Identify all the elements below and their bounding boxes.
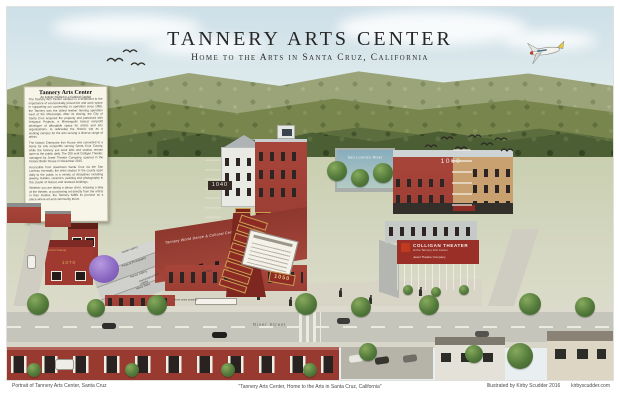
- tree: [327, 161, 347, 181]
- street-tree: [419, 295, 439, 315]
- theater-sign-wall: Colligan Theater at the Tannery Arts Cen…: [397, 240, 479, 264]
- pedestrian-figure: [289, 299, 292, 306]
- theater-name: Colligan Theater: [413, 243, 477, 248]
- info-paragraph: The Tannery Arts Center campus is a test…: [29, 98, 103, 140]
- street-tree: [87, 299, 105, 317]
- theater-ramp: [379, 240, 399, 298]
- tannery-poster: Tannery Arts Center Home to the Arts in …: [0, 0, 620, 402]
- car: [102, 323, 116, 329]
- caption-website: kirbyscudder.com: [571, 383, 610, 389]
- caption-center: "Tannery Arts Center, Home to the Arts i…: [160, 384, 460, 390]
- parking-lot: [341, 347, 433, 379]
- street-tree: [27, 293, 49, 315]
- bush: [303, 363, 317, 377]
- bush: [125, 363, 139, 377]
- jacaranda-tree: [89, 255, 119, 283]
- car: [337, 318, 350, 324]
- small-shed: [7, 203, 41, 223]
- car: [212, 332, 227, 338]
- bush: [221, 363, 235, 377]
- lofts-stair-tower: [205, 154, 221, 226]
- info-paragraph: The historic Enterprise Iron House was c…: [29, 141, 103, 164]
- mural-text: San Lorenzo River: [337, 156, 393, 160]
- birds-icon: [103, 45, 151, 73]
- crosswalk: [299, 312, 321, 342]
- small-shed: [45, 211, 71, 227]
- street-tree: [519, 293, 541, 315]
- pedestrian-figure: [419, 289, 422, 296]
- neighbor-house-tan: [547, 331, 613, 380]
- theater-tagline: at the Tannery Arts Center: [413, 249, 477, 252]
- info-panel: Tannery Arts Center An Artistic District…: [24, 86, 109, 223]
- pedestrian-figure: [339, 290, 342, 297]
- entrance-sign: River Street Entrance: [195, 298, 237, 305]
- planter-shrub: [459, 285, 469, 295]
- caption-credit: Illustrated by Kirby Scudder 2016: [487, 383, 561, 389]
- lofts-address-sign: 1040: [208, 181, 232, 190]
- parked-car: [27, 255, 36, 269]
- bird-flock-icon: [419, 131, 515, 159]
- illustration-area: Tannery Arts Center Home to the Arts in …: [7, 7, 613, 380]
- street-tree: [465, 345, 483, 363]
- arts-council-address: 1070: [45, 260, 93, 265]
- lofts-dormer: [277, 125, 295, 139]
- street-tree: [359, 343, 377, 361]
- street-name-label: River Street: [253, 322, 286, 327]
- planter-shrub: [403, 285, 413, 295]
- lofts-brick-building: [255, 139, 307, 217]
- street-tree: [351, 297, 371, 317]
- white-van: [55, 359, 74, 370]
- parked-car: [403, 354, 418, 363]
- tree: [351, 169, 369, 187]
- airplane-icon: [519, 35, 573, 67]
- bush: [27, 363, 41, 377]
- tree: [373, 163, 393, 183]
- info-paragraph: Whether you are taking a dance class, en…: [29, 186, 103, 202]
- street-tree: [295, 293, 317, 315]
- street-tree: [575, 297, 595, 317]
- parked-car: [375, 356, 390, 365]
- info-paragraph: Accessible from downtown Santa Cruz via …: [29, 165, 103, 184]
- lofts-tag-sign: [235, 208, 251, 213]
- arts-council-barn: Arts Council Santa Cruz County 1070: [45, 240, 93, 285]
- theater-company: Jewel Theatre Company: [413, 256, 477, 259]
- caption-right: Illustrated by Kirby Scudder 2016 kirbys…: [487, 383, 610, 389]
- street-tree: [147, 295, 167, 315]
- info-panel-body: The Tannery Arts Center campus is a test…: [29, 98, 104, 202]
- tree: [507, 343, 533, 369]
- jewel-theatre-logo-icon: [401, 243, 410, 252]
- caption-left: Portrait of Tannery Arts Center, Santa C…: [12, 383, 107, 389]
